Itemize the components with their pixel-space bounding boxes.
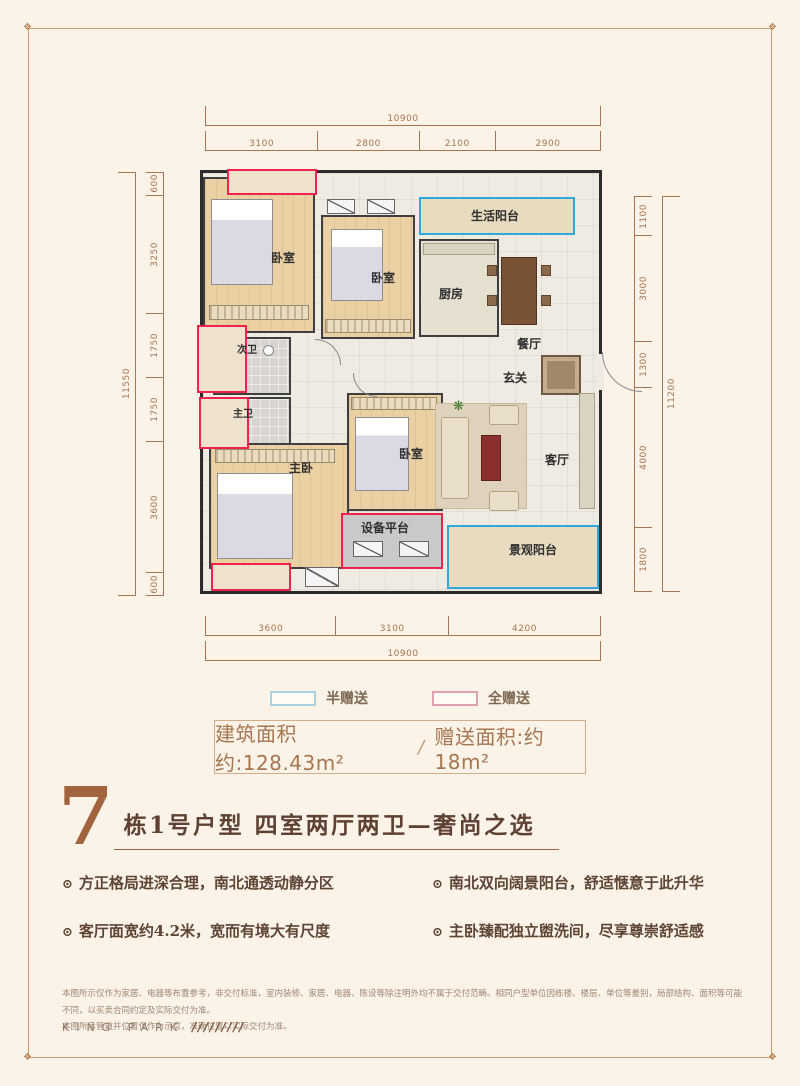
feature-text: 主卧臻配独立盥洗间，尽享尊崇舒适感 bbox=[449, 922, 704, 940]
separator: / bbox=[418, 737, 425, 758]
legend-item-half-gift: 半赠送 bbox=[270, 688, 368, 708]
chair-icon bbox=[487, 295, 497, 306]
dim-value: 10900 bbox=[205, 641, 600, 661]
dim-left-segments: 600 3250 1750 1750 3600 600 bbox=[146, 172, 164, 596]
cabinet-icon bbox=[579, 393, 595, 509]
dim-value: 11550 bbox=[118, 172, 136, 595]
dim-value: 2800 bbox=[317, 131, 418, 151]
dim-bottom-segments: 3600 3100 4200 bbox=[205, 616, 601, 636]
chair-icon bbox=[487, 265, 497, 276]
room-label: 主卧 bbox=[289, 459, 313, 476]
armchair-icon bbox=[489, 405, 519, 425]
dim-value: 1800 bbox=[634, 527, 652, 591]
dim-value: 600 bbox=[146, 572, 164, 595]
build-area-text: 建筑面积约:128.43m² bbox=[215, 718, 408, 776]
room-label: 主卫 bbox=[233, 405, 253, 420]
wardrobe-icon bbox=[215, 449, 335, 463]
bed-icon bbox=[331, 229, 383, 301]
bullet-icon: ⊙ bbox=[62, 877, 73, 892]
brand-slashes-icon: ///////// bbox=[192, 1020, 245, 1034]
unit-title-text: 栋1号户型 四室两厅两卫—奢尚之选 bbox=[114, 806, 560, 850]
ac-unit-icon bbox=[367, 199, 395, 214]
bay-window-full-gift bbox=[227, 169, 317, 195]
corner-ornament-icon: ❖ bbox=[23, 1053, 32, 1063]
dim-value: 3100 bbox=[335, 616, 447, 636]
dim-top-segments: 3100 2800 2100 2900 bbox=[205, 131, 601, 151]
dim-value: 600 bbox=[146, 172, 164, 195]
kitchen-counter-icon bbox=[423, 243, 495, 255]
area-summary-box: 建筑面积约:128.43m² / 赠送面积:约18m² bbox=[214, 720, 586, 774]
dim-value: 1100 bbox=[634, 196, 652, 235]
dining-table-icon bbox=[501, 257, 537, 325]
door-arc-icon bbox=[315, 339, 341, 365]
disclaimer-line1: 本图所示仅作为家居、电器等布置参考，非交付标准，室内装修、家居、电器、陈设等除注… bbox=[62, 986, 746, 1019]
room-label: 厨房 bbox=[439, 285, 463, 302]
room-label: 景观阳台 bbox=[509, 541, 557, 558]
corner-ornament-icon: ❖ bbox=[768, 23, 777, 33]
dim-value: 1750 bbox=[146, 377, 164, 441]
dim-value: 3600 bbox=[205, 616, 335, 636]
unit-title: 7 栋1号户型 四室两厅两卫—奢尚之选 bbox=[58, 784, 559, 850]
legend-label: 半赠送 bbox=[326, 688, 368, 708]
room-label: 次卫 bbox=[237, 341, 257, 356]
feature-text: 南北双向阔景阳台，舒适惬意于此升华 bbox=[449, 874, 704, 892]
room-label: 卧室 bbox=[371, 269, 395, 286]
plant-icon: ❋ bbox=[453, 399, 464, 414]
feature-item: ⊙南北双向阔景阳台，舒适惬意于此升华 bbox=[432, 872, 754, 893]
ac-unit-icon bbox=[399, 541, 429, 557]
room-label: 餐厅 bbox=[517, 335, 541, 352]
feature-item: ⊙客厅面宽约4.2米，宽而有境大有尺度 bbox=[62, 920, 384, 941]
bed-icon bbox=[211, 199, 273, 285]
room-label: 玄关 bbox=[503, 369, 527, 386]
room-label: 设备平台 bbox=[361, 519, 409, 536]
room-label: 卧室 bbox=[271, 249, 295, 266]
bed-icon bbox=[217, 473, 293, 559]
foyer-rug-icon bbox=[541, 355, 581, 395]
wardrobe-icon bbox=[351, 397, 437, 410]
flower-bed-full-gift bbox=[211, 563, 291, 591]
sofa-icon bbox=[441, 417, 469, 499]
wardrobe-icon bbox=[325, 319, 411, 333]
half-gift-swatch-icon bbox=[270, 691, 316, 706]
corner-ornament-icon: ❖ bbox=[768, 1053, 777, 1063]
dim-top-total: 10900 bbox=[205, 106, 601, 126]
full-gift-swatch-icon bbox=[432, 691, 478, 706]
feature-item: ⊙方正格局进深合理，南北通透动静分区 bbox=[62, 872, 384, 893]
dim-value: 10900 bbox=[205, 106, 600, 126]
ac-unit-icon bbox=[353, 541, 383, 557]
chair-icon bbox=[541, 295, 551, 306]
feature-item: ⊙主卧臻配独立盥洗间，尽享尊崇舒适感 bbox=[432, 920, 754, 941]
dim-value: 2100 bbox=[419, 131, 495, 151]
floorplan: 卧室 卧室 生活阳台 厨房 餐厅 玄关 次卫 主卫 bbox=[200, 170, 602, 594]
dim-value: 4200 bbox=[448, 616, 600, 636]
dim-value: 3000 bbox=[634, 235, 652, 340]
dim-value: 2900 bbox=[495, 131, 600, 151]
legend-item-full-gift: 全赠送 bbox=[432, 688, 530, 708]
dim-left-total: 11550 bbox=[118, 172, 136, 596]
poster-page: ❖ ❖ ❖ ❖ 10900 3100 2800 2100 2900 11550 … bbox=[0, 0, 800, 1086]
room-label: 生活阳台 bbox=[471, 207, 519, 224]
room-label: 卧室 bbox=[399, 445, 423, 462]
corner-ornament-icon: ❖ bbox=[23, 23, 32, 33]
dim-value: 11200 bbox=[662, 196, 680, 591]
bullet-icon: ⊙ bbox=[432, 925, 443, 940]
armchair-icon bbox=[489, 491, 519, 511]
bullet-icon: ⊙ bbox=[62, 925, 73, 940]
dim-bottom-total: 10900 bbox=[205, 641, 601, 661]
dim-value: 3600 bbox=[146, 441, 164, 572]
feature-text: 方正格局进深合理，南北通透动静分区 bbox=[79, 874, 334, 892]
chair-icon bbox=[541, 265, 551, 276]
brand-name: KING PARK bbox=[62, 1021, 184, 1034]
legend-label: 全赠送 bbox=[488, 688, 530, 708]
bullet-icon: ⊙ bbox=[432, 877, 443, 892]
feature-text: 客厅面宽约4.2米，宽而有境大有尺度 bbox=[79, 922, 330, 940]
sink-icon bbox=[263, 345, 274, 356]
brand-line: KING PARK ///////// bbox=[62, 1020, 245, 1034]
gift-area-text: 赠送面积:约18m² bbox=[435, 721, 585, 774]
dim-value: 3100 bbox=[205, 131, 317, 151]
ac-unit-icon bbox=[327, 199, 355, 214]
ac-unit-icon bbox=[305, 567, 339, 587]
dim-value: 3250 bbox=[146, 195, 164, 313]
legend: 半赠送 全赠送 bbox=[0, 688, 800, 708]
dim-value: 4000 bbox=[634, 387, 652, 527]
room-label: 客厅 bbox=[545, 451, 569, 468]
dim-right-total: 11200 bbox=[662, 196, 680, 592]
dim-value: 1750 bbox=[146, 313, 164, 377]
block-number: 7 bbox=[58, 784, 114, 850]
coffee-table-icon bbox=[481, 435, 501, 481]
feature-list: ⊙方正格局进深合理，南北通透动静分区 ⊙南北双向阔景阳台，舒适惬意于此升华 ⊙客… bbox=[62, 872, 754, 941]
wardrobe-icon bbox=[209, 305, 309, 320]
entrance-door-arc-icon bbox=[602, 352, 642, 392]
dim-right-segments: 1100 3000 1300 4000 1800 bbox=[634, 196, 652, 592]
bay-full-gift bbox=[197, 325, 247, 393]
